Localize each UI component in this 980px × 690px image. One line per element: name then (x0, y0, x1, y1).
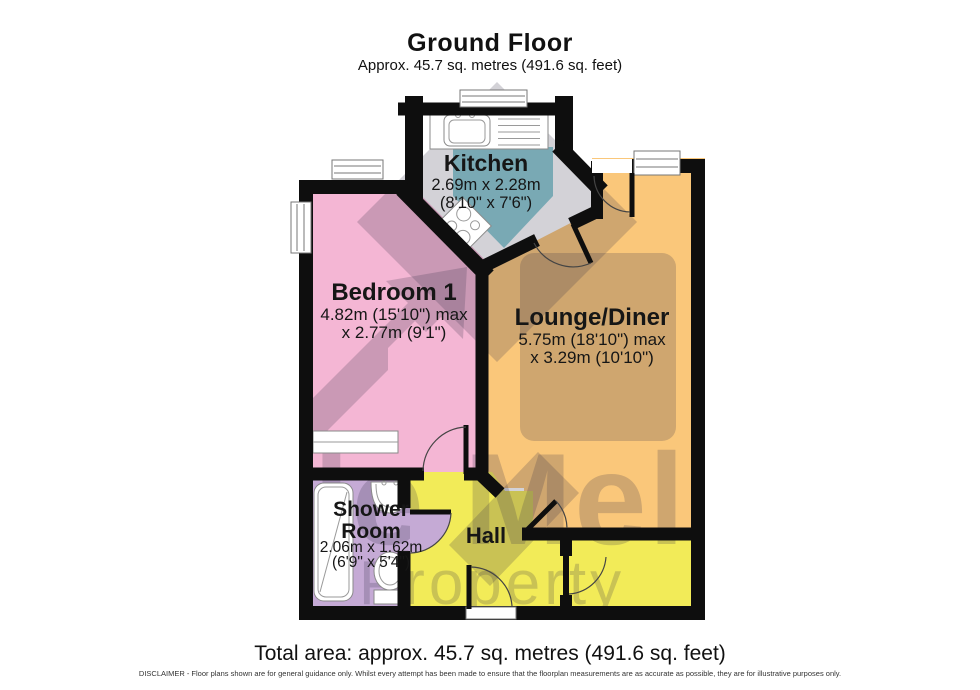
lounge-label: Lounge/Diner (515, 304, 670, 331)
floorplan-drawing: le Mel Property (0, 0, 980, 690)
kitchen-window (460, 90, 527, 107)
disclaimer-text: DISCLAIMER - Floor plans shown are for g… (0, 669, 980, 678)
bedroom-left-window (291, 202, 311, 253)
kitchen-label: Kitchen (444, 150, 528, 176)
bedroom-dim-line2: x 2.77m (9'1") (342, 323, 447, 342)
bedroom-label: Bedroom 1 (331, 279, 456, 306)
lounge-dim-line1: 5.75m (18'10") max (518, 330, 666, 349)
lounge-window (634, 151, 680, 175)
total-area-text: Total area: approx. 45.7 sq. metres (491… (0, 642, 980, 666)
bedroom-dim-line1: 4.82m (15'10") max (320, 305, 468, 324)
hall-label: Hall (466, 523, 506, 548)
lounge-dim-line2: x 3.29m (10'10") (530, 348, 654, 367)
bedroom-top-window (332, 160, 383, 179)
floorplan-page: Ground Floor Approx. 45.7 sq. metres (49… (0, 0, 980, 690)
shower-label-line1: Shower (333, 498, 409, 521)
kitchen-sink-unit-icon (430, 110, 548, 149)
shower-dim-line2: (6'9" x 5'4") (332, 554, 410, 571)
wardrobe (313, 431, 398, 453)
kitchen-dim-metric: 2.69m x 2.28m (431, 176, 540, 194)
kitchen-dim-imperial: (8'10" x 7'6") (440, 194, 532, 212)
